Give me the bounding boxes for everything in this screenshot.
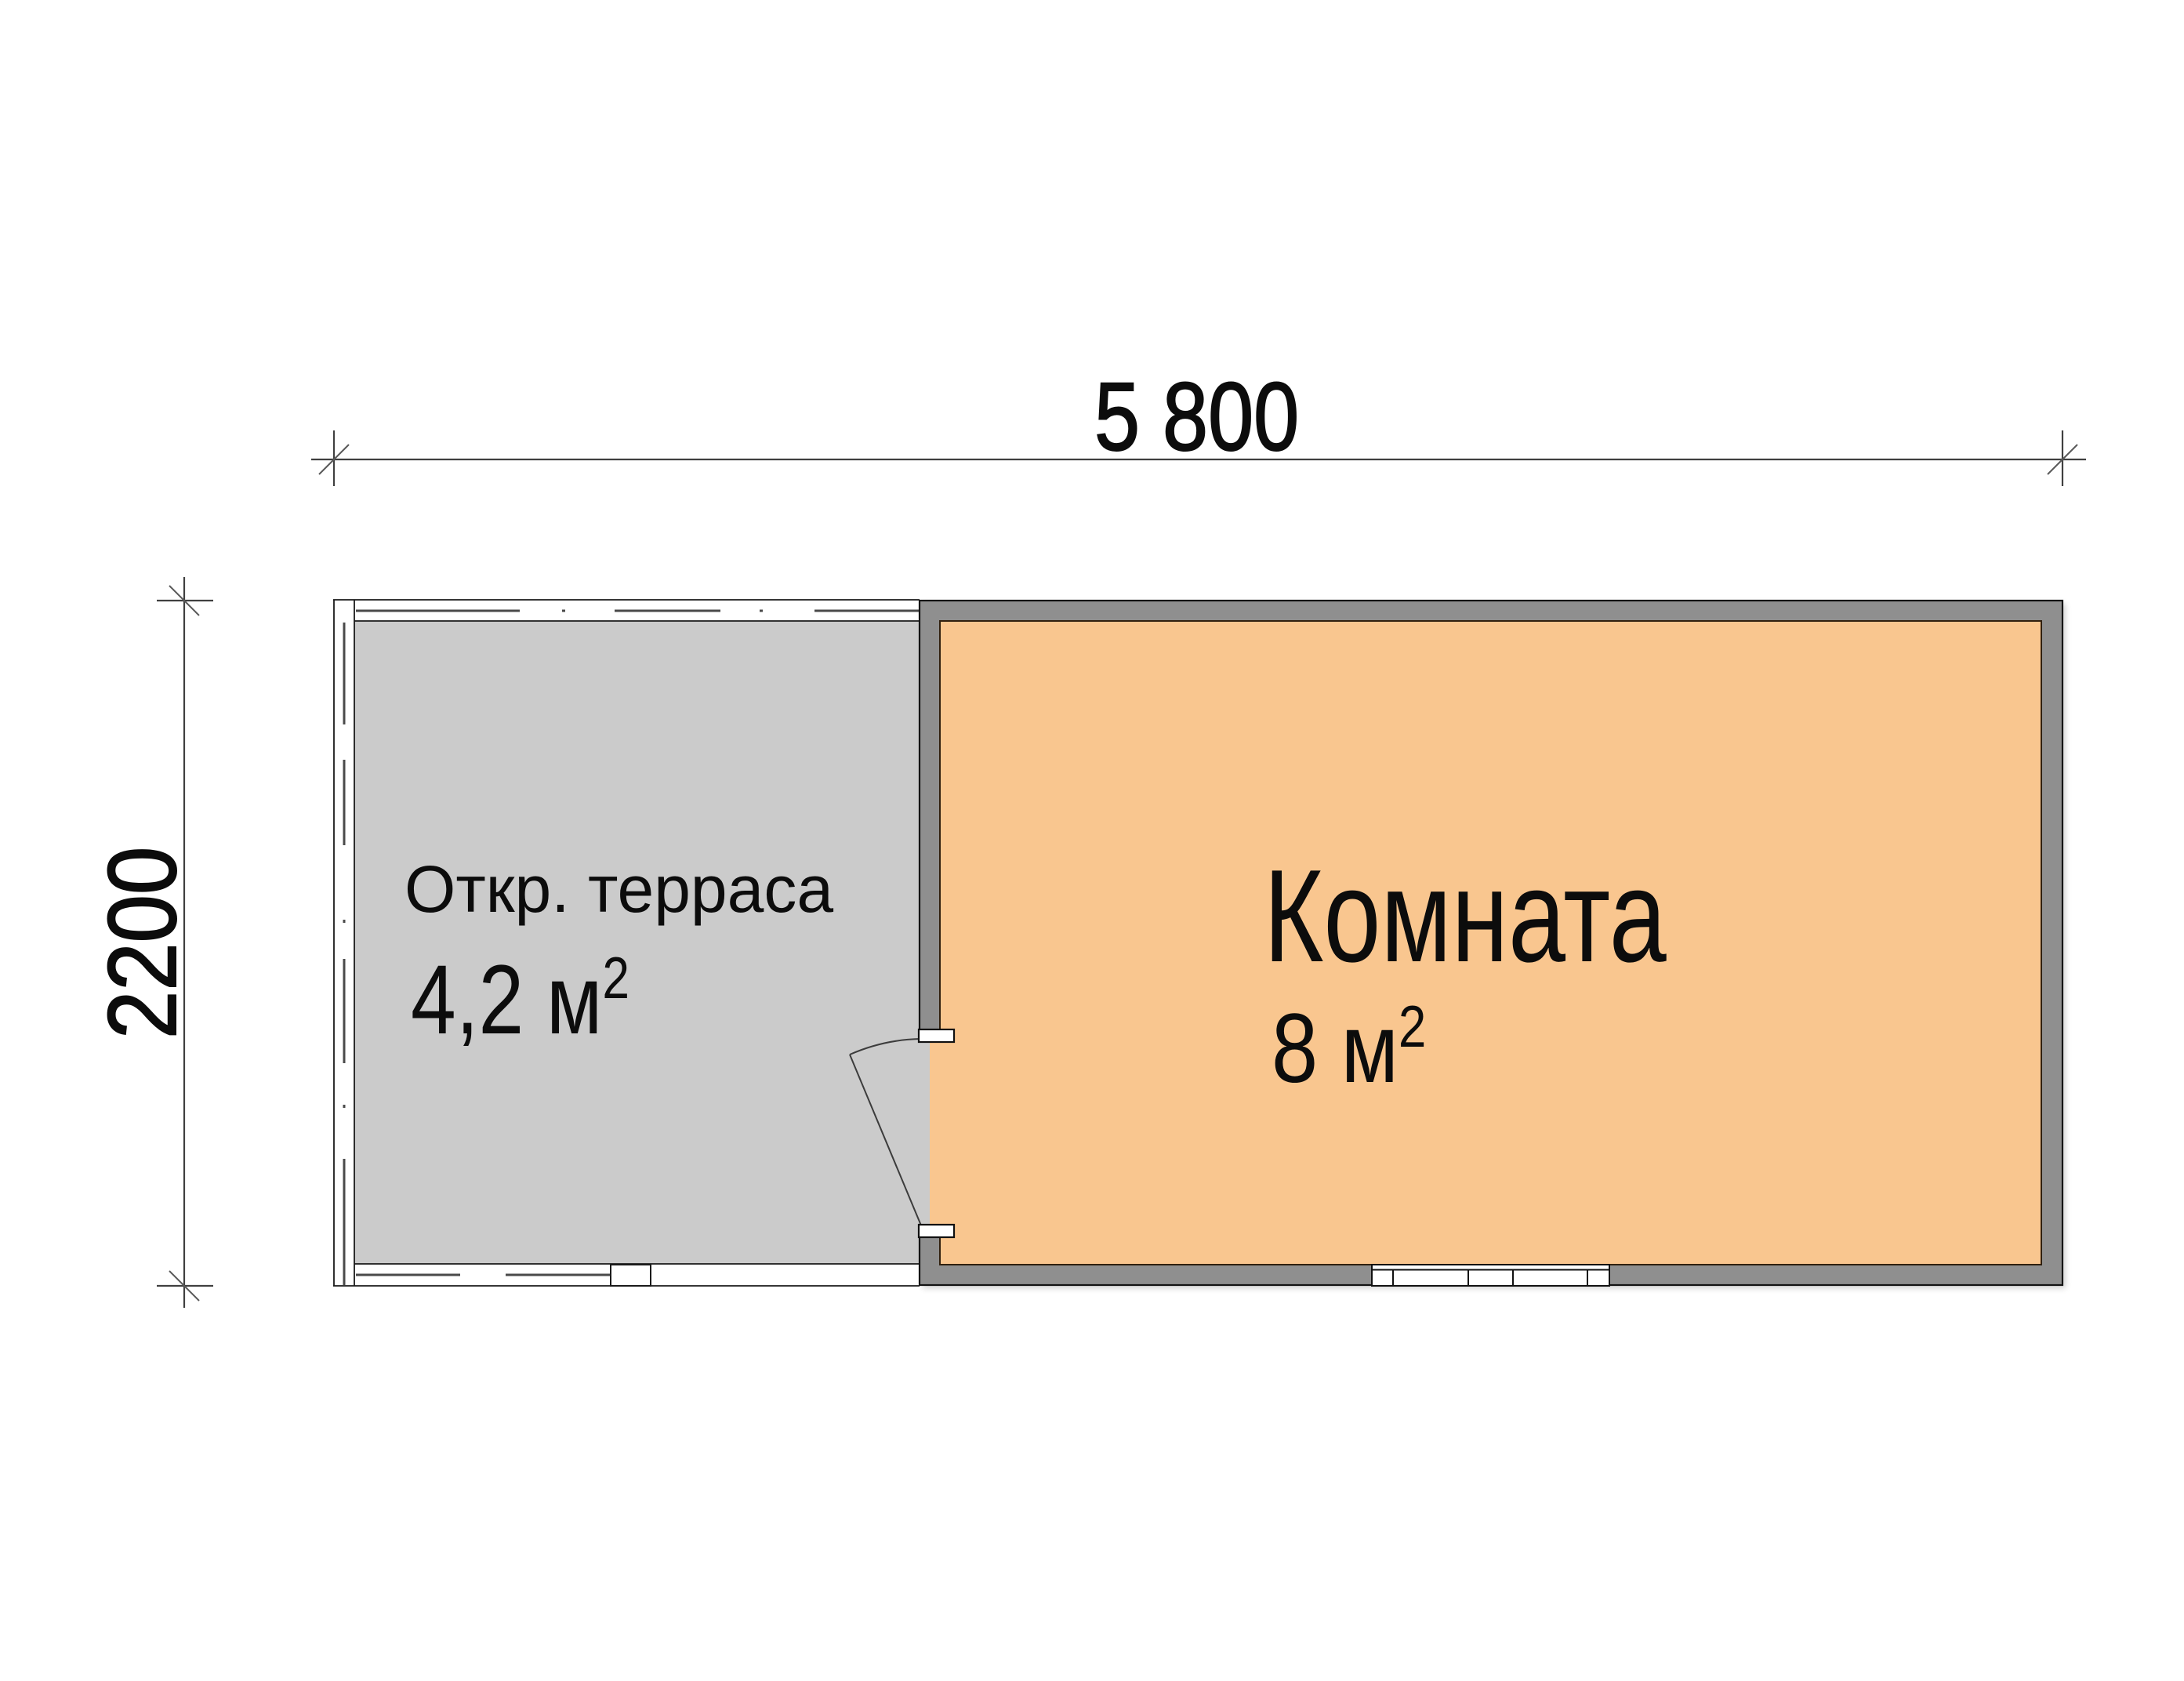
- svg-text:4,2 м2: 4,2 м2: [411, 946, 629, 1055]
- svg-text:5 800: 5 800: [1094, 364, 1299, 471]
- svg-text:Откр. терраса: Откр. терраса: [405, 852, 833, 926]
- svg-text:2200: 2200: [88, 847, 196, 1039]
- svg-text:Комната: Комната: [1264, 842, 1667, 989]
